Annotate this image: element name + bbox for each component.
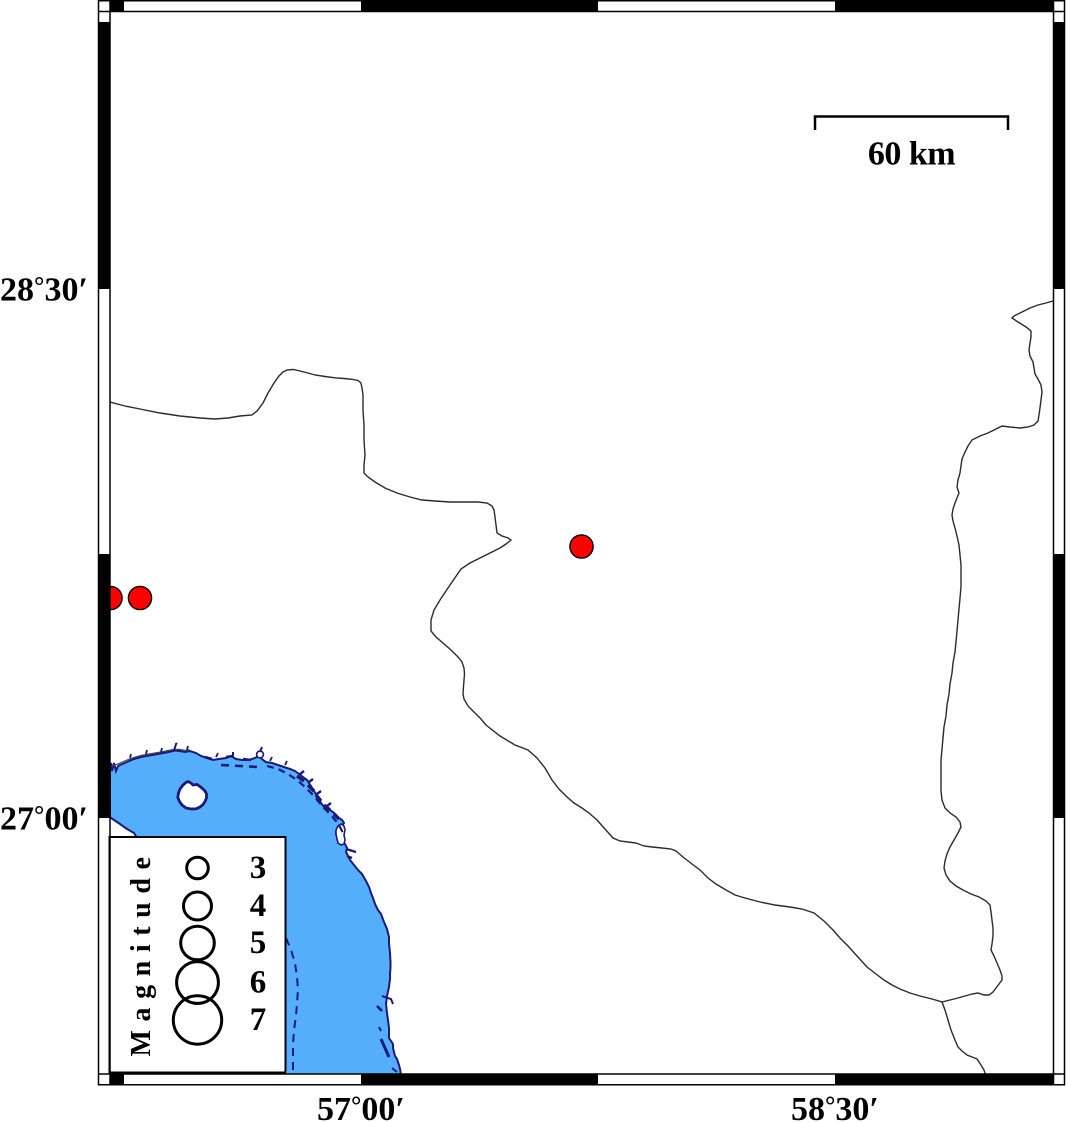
svg-text:27°00′: 27°00′ xyxy=(0,801,88,838)
svg-text:3: 3 xyxy=(250,850,267,886)
svg-text:5: 5 xyxy=(250,925,267,961)
svg-text:57°00′: 57°00′ xyxy=(317,1091,405,1122)
svg-text:7: 7 xyxy=(250,1002,267,1038)
svg-text:28°30′: 28°30′ xyxy=(0,272,88,309)
svg-text:58°30′: 58°30′ xyxy=(791,1091,879,1122)
svg-text:6: 6 xyxy=(250,965,267,1001)
svg-text:60 km: 60 km xyxy=(868,136,955,173)
svg-text:Magnitude: Magnitude xyxy=(126,848,157,1056)
svg-text:4: 4 xyxy=(250,888,267,924)
